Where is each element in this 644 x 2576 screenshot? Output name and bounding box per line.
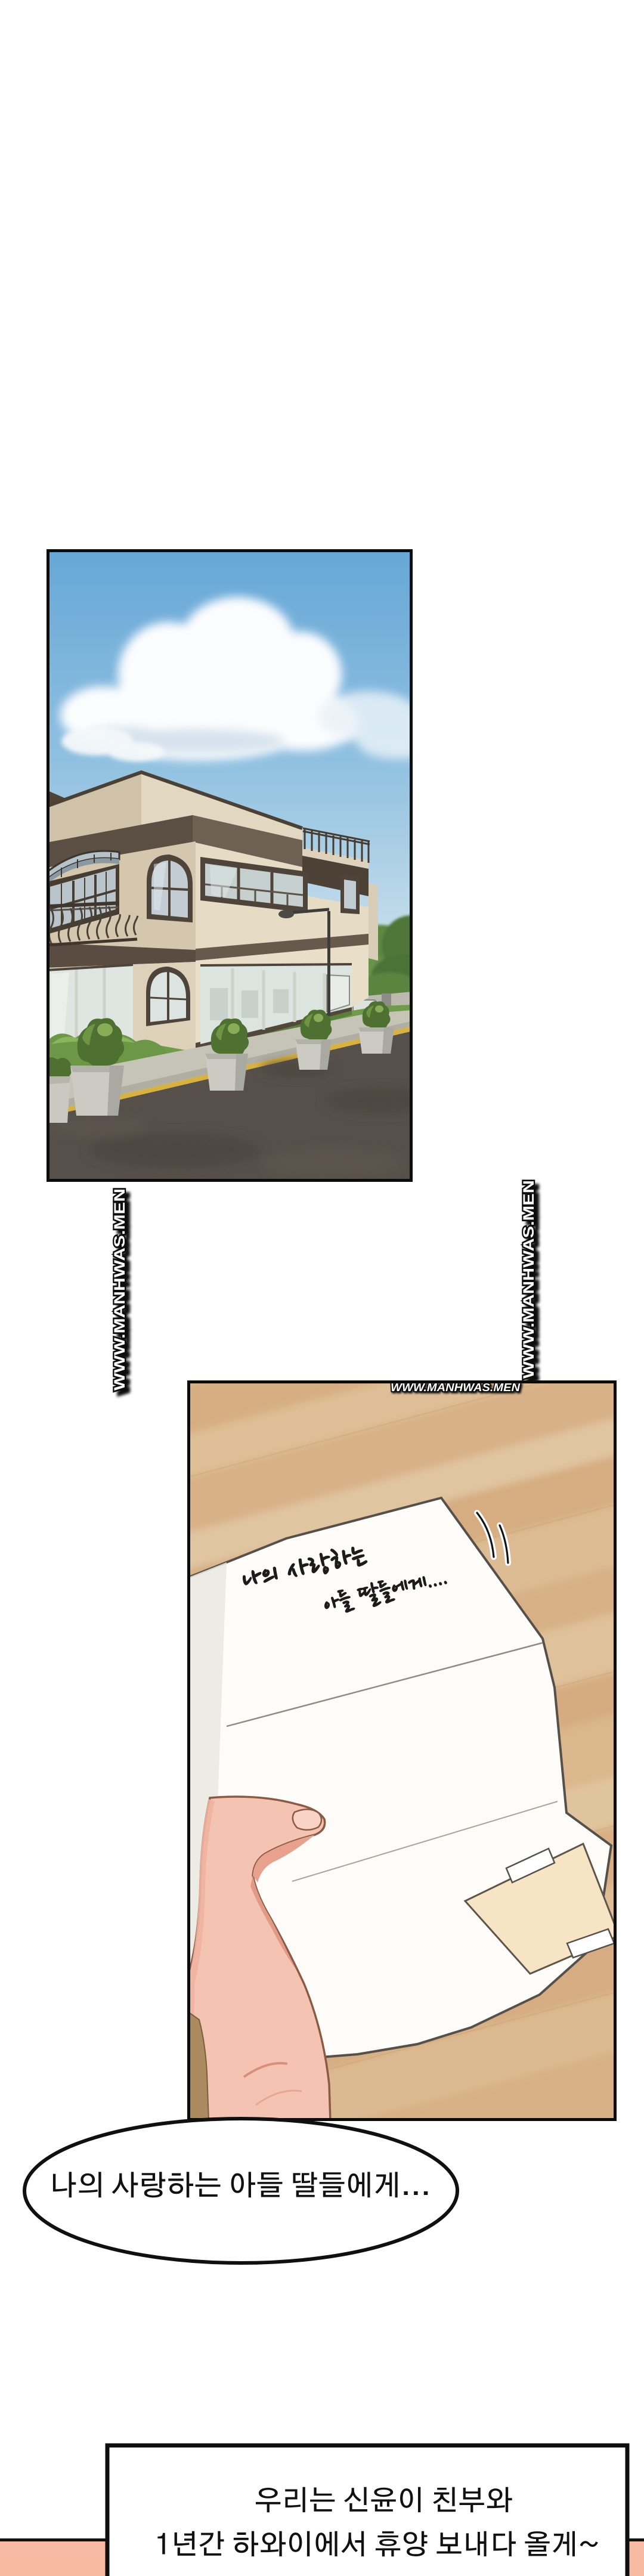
svg-text:WWW.MANHWAS.MEN: WWW.MANHWAS.MEN	[112, 1188, 128, 1391]
svg-text:WWW.MANHWAS.MEN: WWW.MANHWAS.MEN	[521, 1180, 537, 1379]
svg-text:WWW.MANHWAS.MEN: WWW.MANHWAS.MEN	[391, 1382, 521, 1394]
